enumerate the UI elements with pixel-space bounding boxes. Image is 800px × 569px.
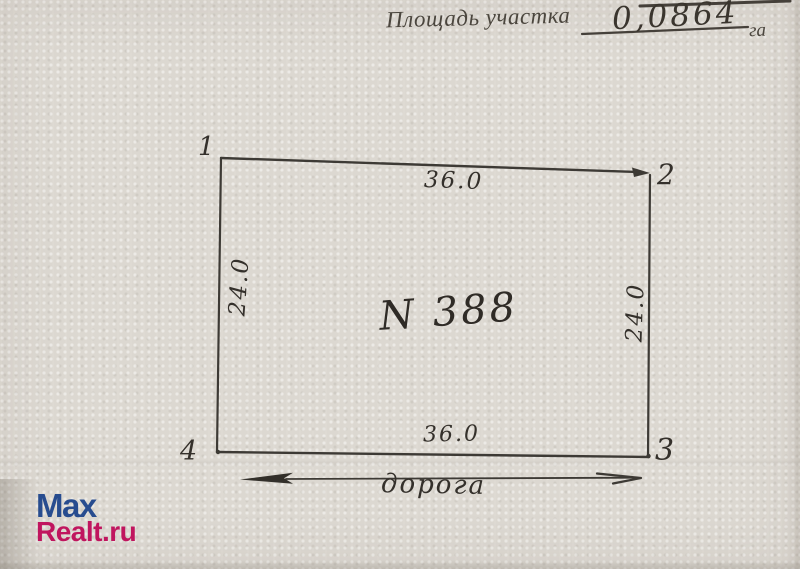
paper-crease — [0, 460, 800, 467]
dimension-bottom: 36.0 — [423, 424, 480, 447]
dimension-left: 24.0 — [226, 251, 254, 322]
watermark-line1: Max — [36, 492, 136, 519]
site-watermark: Max Realt.ru — [36, 492, 136, 545]
plot-number: N 388 — [378, 287, 520, 337]
area-label: Площадь участка — [386, 4, 571, 32]
dimension-right: 24.0 — [623, 277, 648, 348]
scan-edge-shadow-bottom-left — [0, 479, 38, 569]
corner-4-mark — [216, 450, 220, 454]
corner-label-1: 1 — [198, 134, 215, 160]
bottom-boundary-line — [217, 452, 649, 457]
top-boundary-arrowhead-icon — [632, 168, 650, 178]
left-boundary-line — [217, 158, 221, 452]
scan-edge-shadow-bottom — [0, 560, 800, 569]
area-value: 0,0864 — [611, 0, 739, 35]
road-arrowhead-left-icon — [240, 473, 293, 484]
road-label: дорога — [381, 471, 487, 499]
scan-edge-shadow-right — [788, 0, 800, 569]
dimension-top: 36.0 — [424, 169, 484, 194]
scanned-plot-plan-page: Площадь участка 0,0864 га 1 2 3 4 36.0 3… — [0, 0, 800, 569]
corner-label-2: 2 — [657, 161, 675, 189]
corner-label-3: 3 — [655, 436, 674, 466]
area-unit: га — [749, 21, 767, 41]
corner-label-4: 4 — [180, 438, 197, 465]
road-arrowhead-right-icon — [597, 474, 641, 484]
watermark-line2: Realt.ru — [36, 519, 136, 545]
corner-3-mark — [646, 454, 650, 458]
